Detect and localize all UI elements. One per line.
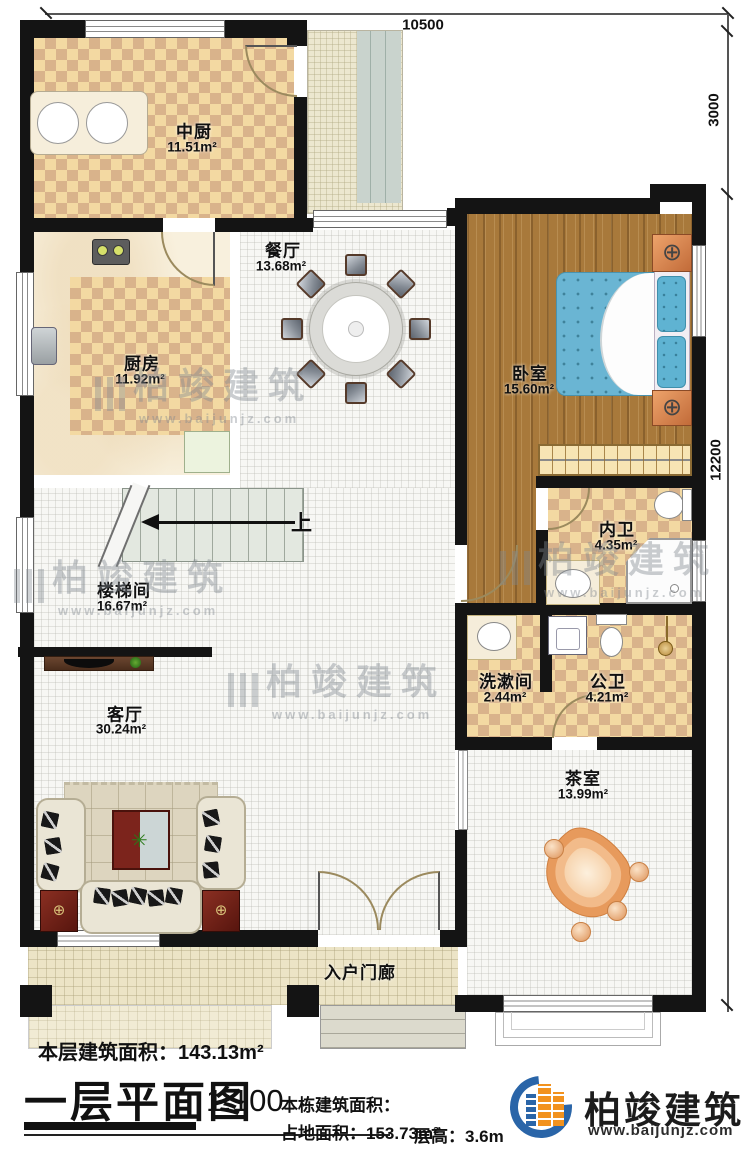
brand-logo-bar [553,1092,564,1126]
brand-logo-bar [538,1084,551,1126]
porch-column [20,985,52,1017]
basin-icon [86,102,128,144]
bed-pillow [657,276,686,332]
washing-machine-door [556,628,580,650]
window [313,210,447,228]
wall [20,396,34,517]
sofa-pillow [202,861,220,879]
wall [20,613,34,930]
tea-stool [629,862,649,882]
dining-chair [409,318,431,340]
room-area-tearoom: 13.99m² [558,787,608,802]
sofa-pillow [129,887,148,906]
basin-icon [477,622,511,651]
basin-icon [555,569,591,598]
sofa-pillow [147,889,165,907]
wall [653,995,706,1012]
room-area-kitchen: 11.92m² [115,372,165,387]
window [16,517,34,613]
dining-chair [345,382,367,404]
stairs-up-label: 上 [291,507,313,537]
sofa-pillow [202,809,221,828]
terrace-step-strip [357,31,401,203]
wall [20,20,85,38]
dimension-line-top [45,13,729,15]
toilet-tank [596,614,627,625]
sofa-pillow [165,887,184,906]
room-area-ensuite: 4.35m² [595,538,638,553]
stairs-direction-line [157,521,295,524]
wall [20,218,163,232]
wall [455,198,660,214]
room-area-living: 30.24m² [96,722,146,737]
wall [20,930,57,947]
dining-chair [345,254,367,276]
side-table: ⊕ [40,890,78,932]
kitchen-sink-icon [31,327,57,365]
wall [294,97,307,218]
sofa-pillow [93,887,111,905]
wall [536,476,692,488]
wall [692,602,706,1012]
window [692,540,706,602]
wall [597,737,692,750]
sofa-pillow [111,889,130,908]
room-area-publicbath: 4.21m² [586,690,629,705]
stove-burner-icon [113,245,124,256]
wall [455,214,467,545]
tea-stool [544,839,564,859]
floor-hallway [308,488,455,935]
stairs-arrow-icon [141,514,159,530]
room-label-porch: 入户门廊 [324,959,396,984]
wall [440,930,467,947]
porch-column [287,985,319,1017]
toilet-icon [654,491,684,519]
plant-icon: ✳ [131,828,148,853]
shower-hose-icon [666,616,668,643]
wall [215,218,313,232]
room-area-dining: 13.68m² [256,259,306,274]
tea-stool [607,901,627,921]
wall [692,337,706,540]
sofa-pillow [44,837,62,855]
room-area-stairwell: 16.67m² [97,599,147,614]
wall [692,202,706,245]
sofa-pillow [204,835,222,853]
toilet-icon [600,627,623,657]
dimension-right-lower: 12200 [708,439,725,481]
dining-table-hub [348,321,364,337]
wall [225,20,307,38]
window [85,20,225,38]
nightstand: ⊕ [652,234,692,272]
room-area-washroom: 2.44m² [484,690,527,705]
side-table: ⊕ [202,890,240,932]
nightstand: ⊕ [652,390,692,426]
fridge-icon [184,431,230,473]
window [503,995,653,1012]
dimension-top: 10500 [402,17,444,34]
wall [650,184,706,202]
shower-drain-icon [670,584,679,593]
dining-chair [281,318,303,340]
room-area-zhongchu: 11.51m² [167,140,217,155]
room-area-bedroom: 15.60m² [504,382,554,397]
stove-burner-icon [97,245,108,256]
floor-plan-canvas: 柏竣建筑 www.baijunjz.com 柏竣建筑 www.baijunjz.… [0,0,750,1151]
sofa-pillow [41,811,60,830]
building-area-label: 本栋建筑面积： [281,1091,400,1116]
plant-icon [130,657,141,668]
dimension-right-upper: 3000 [706,93,723,126]
tearoom-sliding-door [458,750,468,830]
basin-icon [37,102,79,144]
wall [455,995,503,1012]
wall [455,737,552,750]
wardrobe [538,444,692,476]
brand-logo: 柏竣建筑 www.baijunjz.com [510,1072,750,1150]
floor-height-text: 层高：3.6m [414,1122,504,1147]
brand-url: www.baijunjz.com [588,1122,733,1139]
floor-area-text: 本层建筑面积：143.13m² [38,1036,264,1065]
entry-steps [320,1005,466,1049]
toilet-tank [682,489,692,521]
shower-head-icon [658,641,673,656]
dimension-line-right [727,14,729,1012]
plan-scale: 1:100 [206,1083,284,1119]
wall [20,38,34,272]
window [692,245,706,337]
wall [455,830,467,937]
brand-logo-bar [526,1094,536,1126]
bed-pillow [657,336,686,388]
bay-window-line [511,1012,645,1030]
wall [455,615,467,737]
tea-stool [571,922,591,942]
